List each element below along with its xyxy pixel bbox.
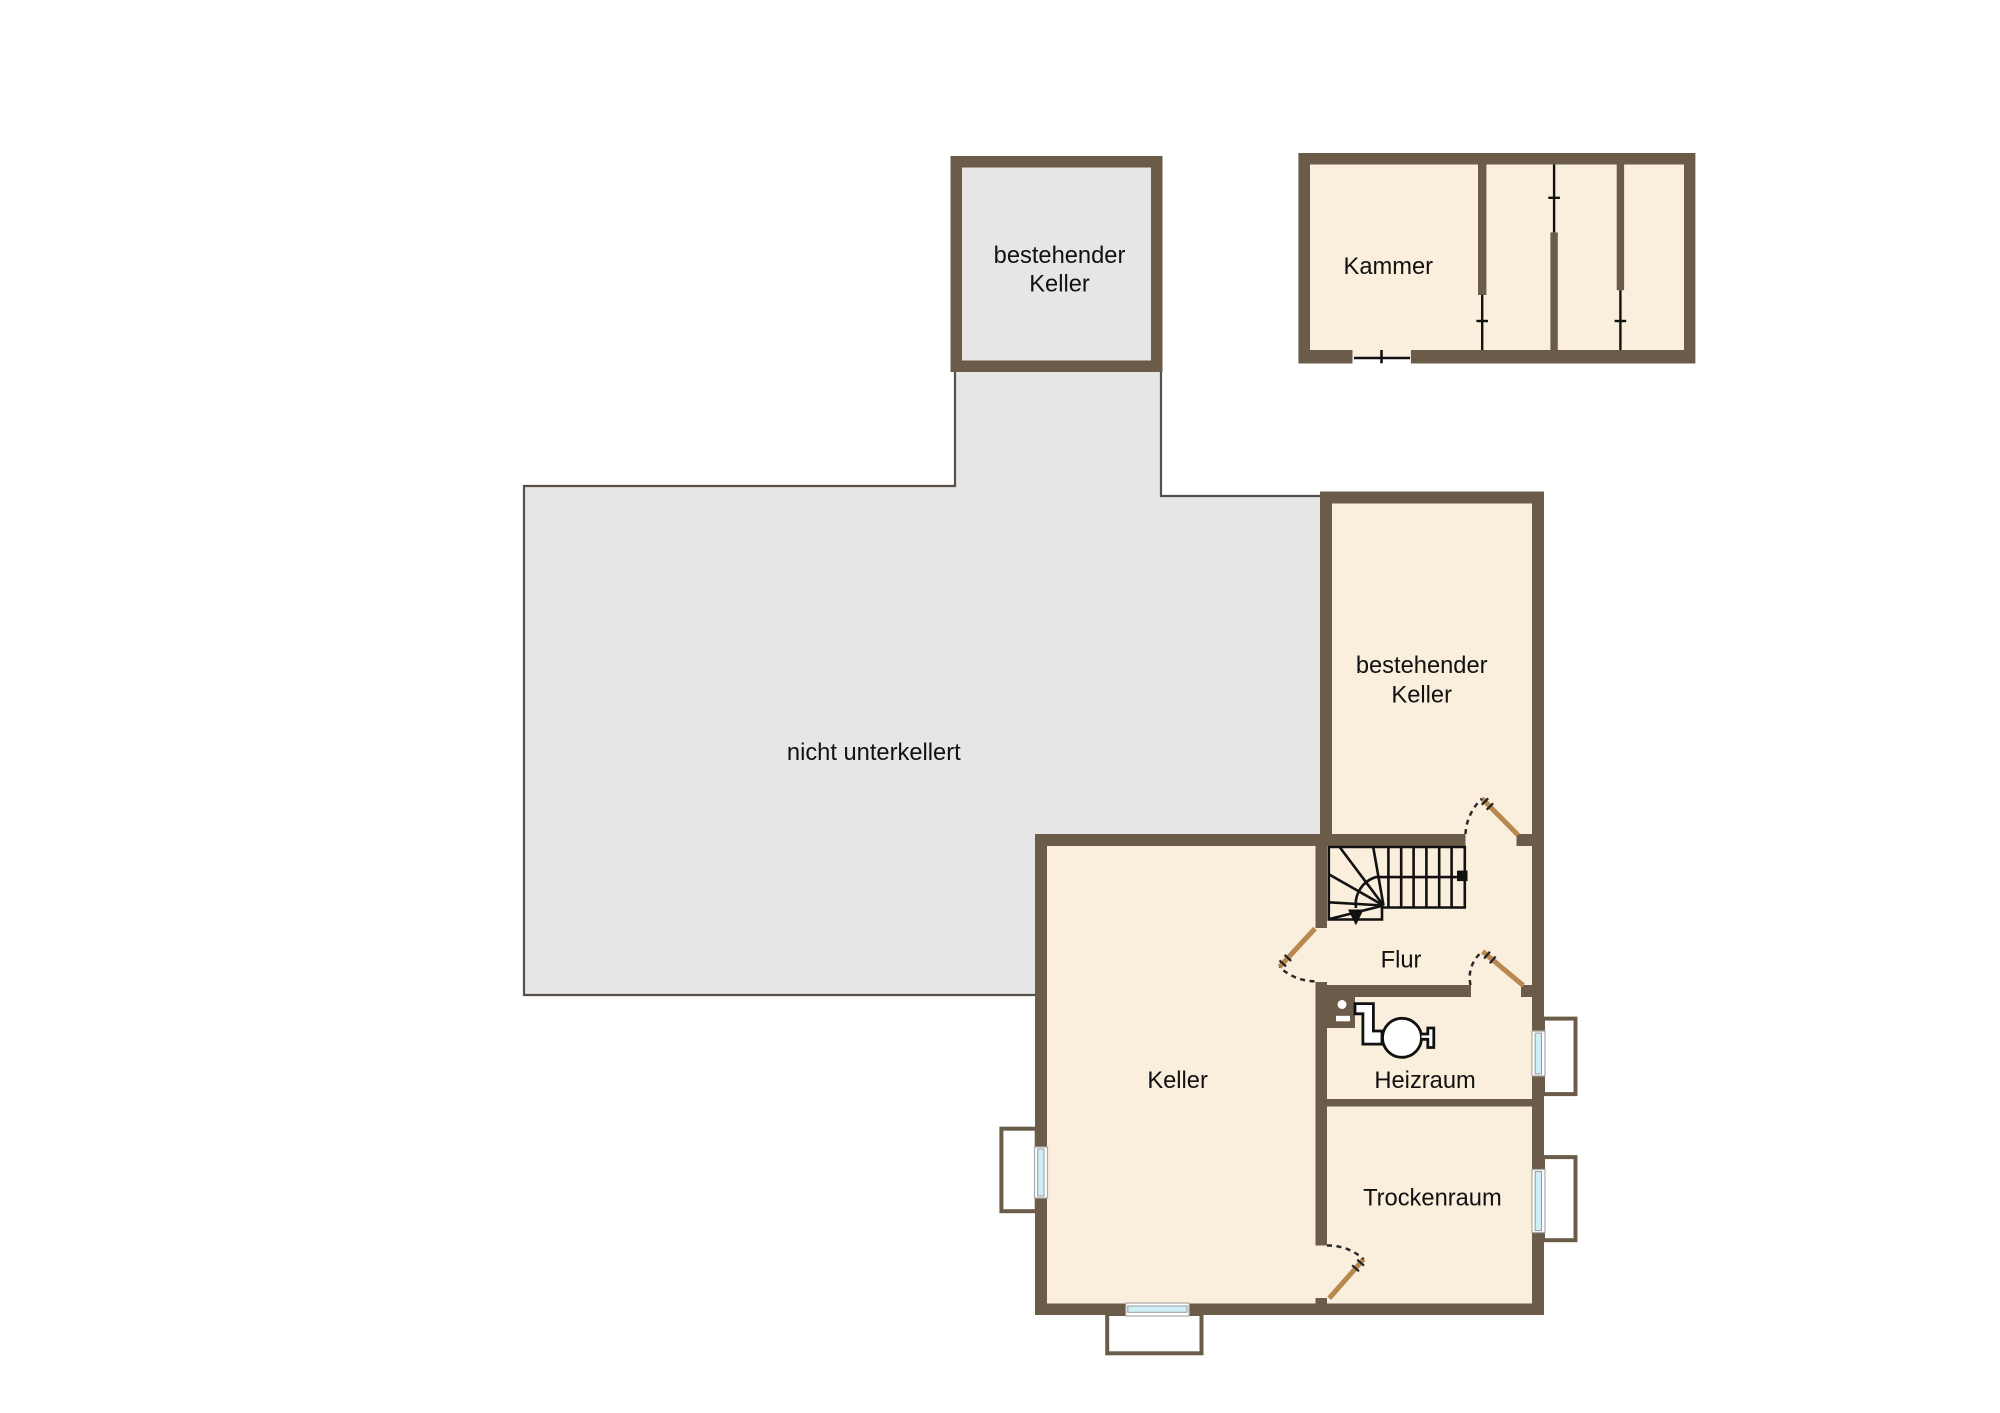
svg-text:Trockenraum: Trockenraum: [1363, 1186, 1502, 1212]
svg-text:bestehender: bestehender: [1356, 653, 1488, 679]
svg-text:nicht unterkellert: nicht unterkellert: [787, 740, 961, 766]
svg-text:Keller: Keller: [1147, 1068, 1208, 1094]
svg-text:Heizraum: Heizraum: [1374, 1068, 1475, 1094]
svg-text:bestehender: bestehender: [994, 243, 1126, 269]
svg-text:Flur: Flur: [1381, 948, 1422, 974]
svg-text:Kammer: Kammer: [1344, 254, 1434, 280]
svg-text:Keller: Keller: [1391, 683, 1452, 709]
svg-text:Keller: Keller: [1029, 271, 1090, 297]
